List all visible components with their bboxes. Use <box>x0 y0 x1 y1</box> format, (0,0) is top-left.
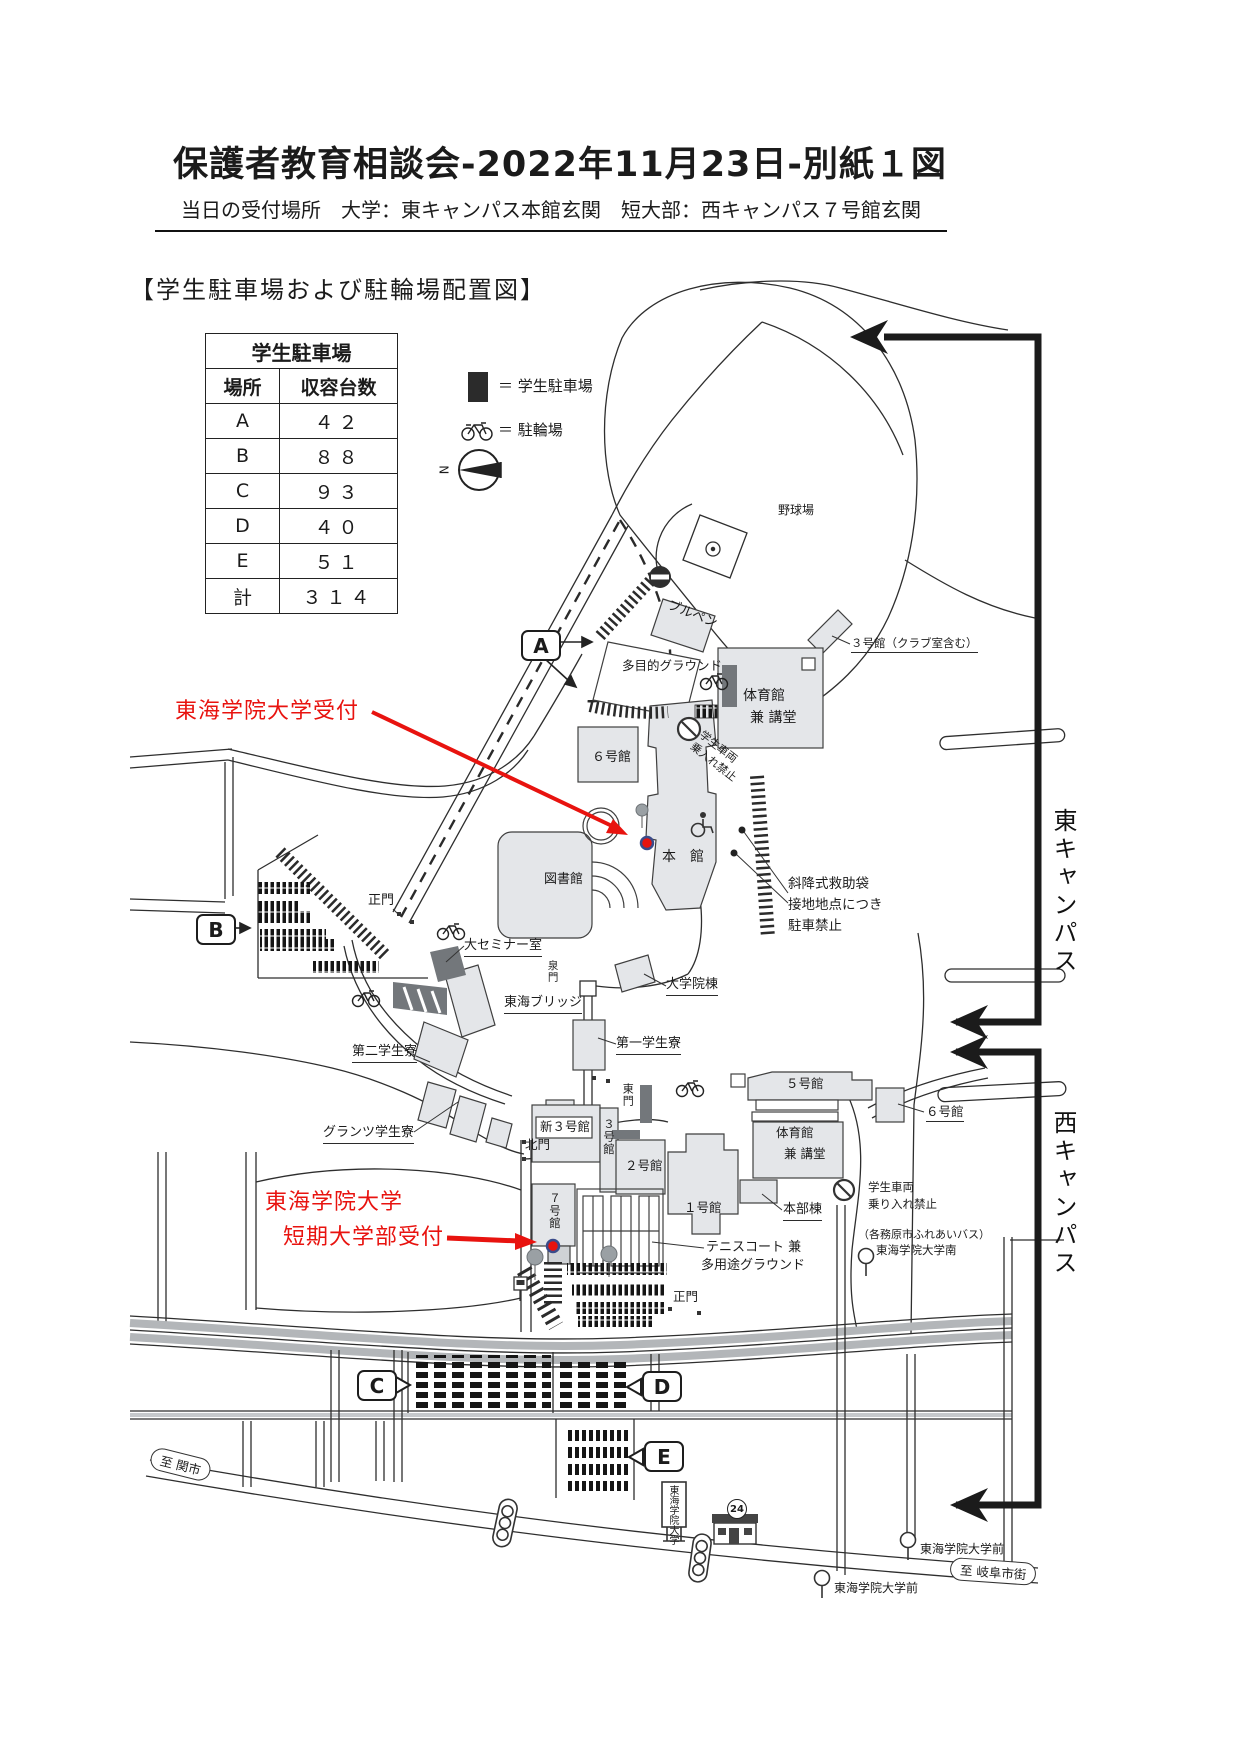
junior-college-annotation-line2: 短期大学部受付 <box>283 1224 444 1253</box>
table-row: B８８ <box>206 439 398 474</box>
east-gate-label: 東門 <box>620 1083 634 1107</box>
main-gate-east-label: 正門 <box>368 893 394 910</box>
main-gate-west-label: 正門 <box>673 1289 698 1305</box>
no-entry-west-label: 学生車両乗り入れ禁止 <box>868 1179 937 1214</box>
junior-college-annotation-line1: 東海学院大学 <box>265 1189 403 1218</box>
parking-marker-e: E <box>644 1441 684 1472</box>
rescue-note-line1: 斜降式救助袋 <box>788 874 883 895</box>
small-sign-icon <box>514 1277 527 1301</box>
reception-info-subtitle: 当日の受付場所 大学：東キャンパス本館玄関 短大部：西キャンパス７号館玄関 <box>155 194 947 232</box>
building3-west-label: ３号館 <box>601 1118 616 1156</box>
building2-label: ２号館 <box>625 1158 663 1174</box>
north-compass-icon <box>459 450 501 490</box>
document-page: 保護者教育相談会-2022年11月23日-別紙１図 当日の受付場所 大学：東キャ… <box>0 0 1241 1755</box>
north-gate-label: 北門 <box>525 1137 550 1153</box>
legend-bicycle-label: ＝ 駐輪場 <box>498 421 563 441</box>
row-location: B <box>206 439 280 474</box>
building1-label: １号館 <box>684 1200 722 1216</box>
no-entry-west-line1: 学生車両 <box>868 1179 937 1196</box>
building7-label: ７号館 <box>547 1192 562 1230</box>
table-row: D４０ <box>206 509 398 544</box>
table-row: A４２ <box>206 404 398 439</box>
row-capacity: ４２ <box>280 404 398 439</box>
row-location: D <box>206 509 280 544</box>
row-capacity: ８８ <box>280 439 398 474</box>
tennis-court-label-line2: 多用途グラウンド <box>701 1258 805 1275</box>
section-heading: 【学生駐車場および駐輪場配置図】 <box>130 270 546 305</box>
bus-service-label: （各務原市ふれあいバス） <box>858 1228 990 1242</box>
page-title: 保護者教育相談会-2022年11月23日-別紙１図 <box>0 136 1120 187</box>
tokai-bridge-label: 東海ブリッジ <box>504 995 582 1014</box>
col-header-location: 場所 <box>206 369 280 404</box>
table-row: E５１ <box>206 544 398 579</box>
parking-marker-a: A <box>521 630 561 661</box>
row-capacity: ３１４ <box>280 579 398 614</box>
bus-stop-south-label: 東海学院大学前 <box>834 1581 918 1597</box>
row-location: C <box>206 474 280 509</box>
shin-building3-label: 新３号館 <box>540 1119 590 1135</box>
second-dorm-label: 第二学生寮 <box>352 1044 417 1063</box>
gym-east-label-line2: 兼 講堂 <box>750 709 796 727</box>
tennis-court-label-line1: テニスコート 兼 <box>706 1240 801 1257</box>
parking-marker-c: C <box>357 1370 397 1401</box>
parking-marker-b: B <box>196 914 236 945</box>
building5-label: ５号館 <box>786 1076 824 1092</box>
row-location: A <box>206 404 280 439</box>
parking-capacity-table: 学生駐車場 場所 収容台数 A４２ B８８ C９３ D４０ E５１ 計３１４ <box>205 333 398 614</box>
baseball-field-label: 野球場 <box>778 503 814 519</box>
grantz-dorm-label: グランツ学生寮 <box>323 1125 414 1144</box>
parking-swatch-icon <box>468 372 488 402</box>
multipurpose-ground-label: 多目的グラウンド <box>622 658 722 674</box>
table-row: 計３１４ <box>206 579 398 614</box>
row-location: E <box>206 544 280 579</box>
bus-stop-icons <box>815 1249 916 1599</box>
hq-building-label: 本部棟 <box>783 1202 822 1221</box>
rescue-chute-note: 斜降式救助袋接地地点につき駐車禁止 <box>788 874 883 937</box>
grad-school-label: 大学院棟 <box>666 977 718 996</box>
parking-marker-d: D <box>642 1371 682 1402</box>
rescue-note-line2: 接地地点につき <box>788 895 883 916</box>
table-title: 学生駐車場 <box>206 334 398 369</box>
compass-north-label: N <box>438 465 454 474</box>
bus-stop-south-campus-label: 東海学院大学南 <box>876 1243 957 1258</box>
building6-west-label: ６号館 <box>926 1104 964 1122</box>
university-gate-sign-label: 東海学院大学 <box>666 1485 679 1545</box>
row-capacity: ５１ <box>280 544 398 579</box>
legend-parking-label: ＝ 学生駐車場 <box>498 377 593 397</box>
table-row: C９３ <box>206 474 398 509</box>
gym-west-label-line2: 兼 講堂 <box>784 1146 825 1162</box>
east-campus-label: 東キャンパス <box>1046 808 1081 976</box>
col-header-capacity: 収容台数 <box>280 369 398 404</box>
rescue-note-line3: 駐車禁止 <box>788 916 883 937</box>
store-24-badge: 24 <box>727 1499 747 1519</box>
gym-east-label-line1: 体育館 <box>743 687 785 705</box>
row-capacity: ４０ <box>280 509 398 544</box>
seminar-room-label: 大セミナー室 <box>464 938 542 957</box>
university-reception-annotation: 東海学院大学受付 <box>175 698 359 727</box>
no-entry-west-line2: 乗り入れ禁止 <box>868 1196 937 1213</box>
library-label: 図書館 <box>544 872 583 889</box>
west-campus-label: 西キャンパス <box>1046 1110 1081 1278</box>
row-location: 計 <box>206 579 280 614</box>
building6-east-label: ６号館 <box>592 750 631 767</box>
bus-stop-north-label: 東海学院大学前 <box>920 1542 1004 1558</box>
first-dorm-label: 第一学生寮 <box>616 1036 681 1055</box>
row-capacity: ９３ <box>280 474 398 509</box>
building3-club-label: ３号館（クラブ室含む） <box>851 636 978 653</box>
gym-west-label-line1: 体育館 <box>776 1125 814 1141</box>
izumi-gate-label: 泉門 <box>545 960 559 983</box>
main-building-label: 本 館 <box>662 848 704 866</box>
